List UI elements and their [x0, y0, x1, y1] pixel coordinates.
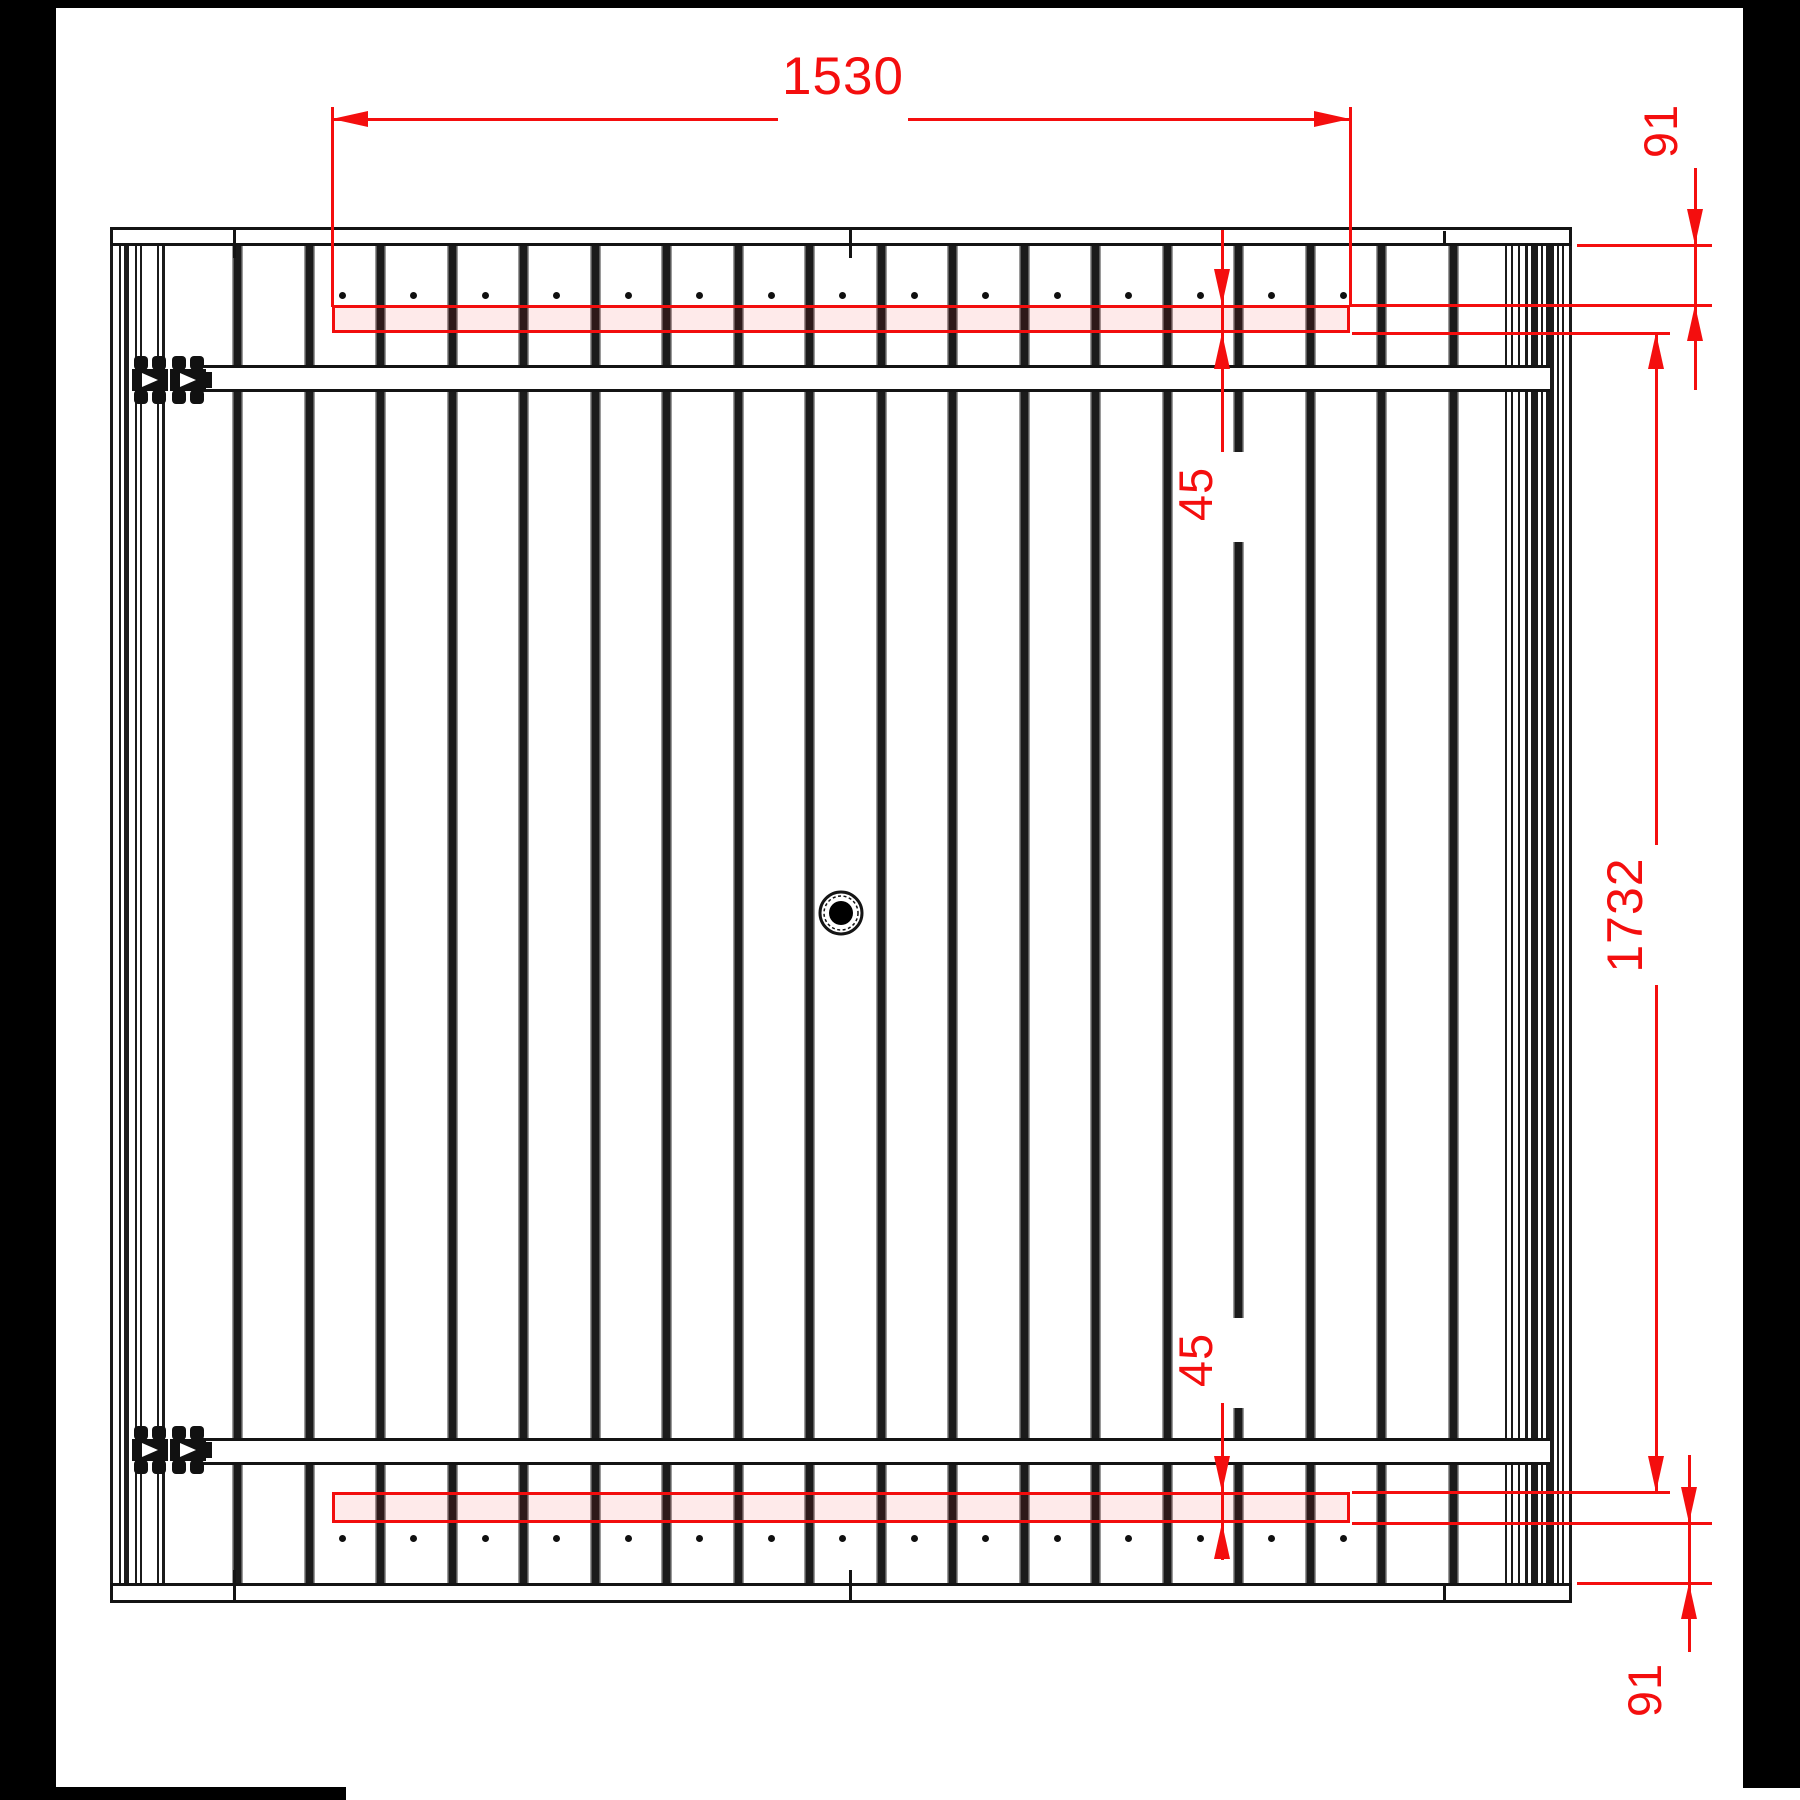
board-gap-line [947, 246, 958, 1583]
left-post-line [119, 246, 121, 1583]
ext-line-batten-left [331, 107, 334, 307]
screw-dot [625, 1535, 632, 1542]
screw-dot [410, 292, 417, 299]
screw-dot [1268, 1535, 1275, 1542]
screw-dot [482, 1535, 489, 1542]
screw-dot [1197, 1535, 1204, 1542]
center-hole-icon [818, 890, 864, 936]
right-post-line [1562, 246, 1564, 1583]
dim-arrowhead [1687, 209, 1703, 245]
screw-dot [839, 292, 846, 299]
screen-frame-left [0, 0, 56, 1800]
cap-seam [233, 229, 236, 258]
screw-dot [1054, 1535, 1061, 1542]
board-gap-line [518, 246, 529, 1583]
screen-frame-top [0, 0, 1800, 8]
screw-dot [982, 292, 989, 299]
left-post-line [162, 246, 165, 1583]
screw-dot [339, 1535, 346, 1542]
batten-highlight-bottom [332, 1492, 1350, 1523]
right-post-line [1511, 246, 1513, 1583]
board-gap-line [232, 246, 243, 1583]
right-post-line [1531, 246, 1538, 1583]
dim-arrowhead [1681, 1487, 1697, 1523]
ext-line-batten-bottom-right [1352, 332, 1670, 335]
board-gap-line [661, 246, 672, 1583]
screw-dot [839, 1535, 846, 1542]
dim-arrowhead [1687, 305, 1703, 341]
hinge-clamp-icon [128, 1422, 212, 1478]
left-post-line [124, 246, 129, 1583]
board-gap-line [876, 246, 887, 1583]
line-break [1228, 452, 1244, 542]
screw-dot [1340, 1535, 1347, 1542]
right-post-line [1518, 246, 1520, 1583]
dim-arrowhead [332, 111, 368, 127]
gate-panel [0, 0, 1800, 1800]
screw-dot [625, 292, 632, 299]
screw-dot [482, 292, 489, 299]
left-post-line [135, 246, 137, 1583]
dim-arrowhead [1681, 1583, 1697, 1619]
dim-arrowhead [1314, 111, 1350, 127]
board-gap-line [1448, 246, 1459, 1583]
panel-top-cap [110, 227, 1572, 246]
right-post-line [1541, 246, 1543, 1583]
hinge-clamp-icon [128, 352, 212, 408]
dim-arrowhead [1214, 333, 1230, 369]
screw-dot [982, 1535, 989, 1542]
screen-frame-bottom-left [0, 1787, 346, 1800]
bottom-rail [195, 1438, 1550, 1465]
screw-dot [1054, 292, 1061, 299]
dim-line-91-top [1694, 168, 1697, 390]
left-post-line [157, 246, 159, 1583]
cap-seam [1443, 231, 1446, 246]
dim-arrowhead [1214, 1456, 1230, 1492]
dim-label-batten-height-top: 45 [1172, 444, 1220, 544]
board-gap-line [733, 246, 744, 1583]
screw-dot [696, 292, 703, 299]
line-break [1228, 1318, 1244, 1408]
cap-seam [849, 1570, 852, 1601]
screw-dot [911, 1535, 918, 1542]
top-rail [195, 365, 1550, 392]
dim-label-offset-top: 91 [1637, 71, 1689, 191]
screw-dot [553, 292, 560, 299]
screen-frame-right [1743, 0, 1800, 1788]
board-gap-line [804, 246, 815, 1583]
dim-line-91-bottom [1688, 1455, 1691, 1652]
cap-seam [849, 229, 852, 258]
ext-line-batten2-bottom-right [1352, 1522, 1712, 1525]
ext-line-batten2-top-right [1352, 1491, 1670, 1494]
right-post-edge [1569, 227, 1572, 1603]
screw-dot [410, 1535, 417, 1542]
dim-arrowhead [1214, 1523, 1230, 1559]
dim-line-1732 [1655, 333, 1658, 845]
ext-line-batten-right [1349, 107, 1352, 307]
technical-drawing: 1530 91 1732 45 45 91 [0, 0, 1800, 1800]
screw-dot [1197, 292, 1204, 299]
board-gap-line [375, 246, 386, 1583]
dim-label-clear-span: 1732 [1600, 805, 1652, 1025]
panel-bottom-cap [110, 1583, 1572, 1603]
dim-label-batten-length: 1530 [743, 50, 943, 103]
board-gap-line [1305, 246, 1316, 1583]
screw-dot [768, 1535, 775, 1542]
dim-arrowhead [1648, 333, 1664, 369]
screw-dot [768, 292, 775, 299]
board-gap-line [1019, 246, 1030, 1583]
left-post-line [110, 227, 113, 1603]
right-post-line [1505, 246, 1507, 1583]
dim-line-1530 [332, 118, 778, 121]
board-gap-line [590, 246, 601, 1583]
board-gap-line [1090, 246, 1101, 1583]
right-post-line [1557, 246, 1559, 1583]
board-gap-line [1376, 246, 1387, 1583]
cap-seam [233, 1570, 236, 1601]
ext-line-batten-top-right [1352, 304, 1712, 307]
board-gap-line [447, 246, 458, 1583]
dim-label-offset-bottom: 91 [1621, 1630, 1673, 1750]
dim-arrowhead [1214, 269, 1230, 305]
cap-seam [1443, 1585, 1446, 1601]
right-post-line [1525, 246, 1528, 1583]
left-post-line [140, 246, 142, 1583]
screw-dot [553, 1535, 560, 1542]
screw-dot [1340, 292, 1347, 299]
screw-dot [339, 292, 346, 299]
screw-dot [911, 292, 918, 299]
screw-dot [1125, 1535, 1132, 1542]
screw-dot [696, 1535, 703, 1542]
screw-dot [1268, 292, 1275, 299]
dim-arrowhead [1648, 1456, 1664, 1492]
dim-line-1732 [1655, 985, 1658, 1492]
screw-dot [1125, 292, 1132, 299]
right-post-line [1546, 246, 1554, 1583]
board-gap-line [304, 246, 315, 1583]
batten-highlight-top [332, 305, 1350, 333]
dim-line-1530 [908, 118, 1350, 121]
dim-label-batten-height-bottom: 45 [1172, 1310, 1220, 1410]
